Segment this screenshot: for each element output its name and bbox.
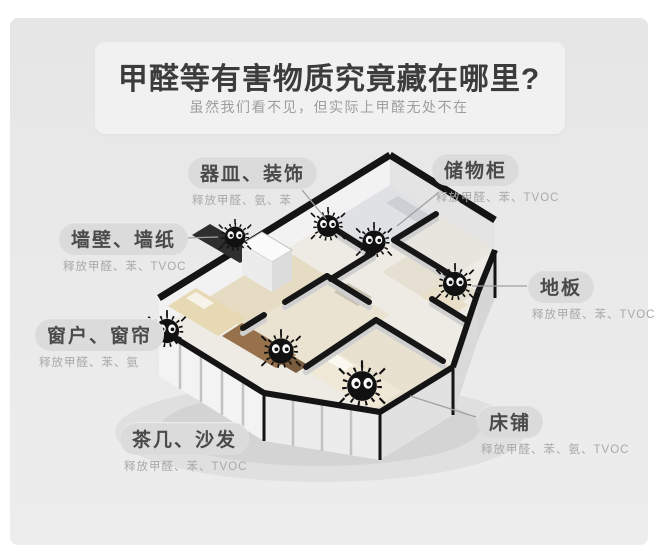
callout-bed: 床铺 释放甲醛、苯、氨、TVOC: [477, 405, 629, 457]
callout-vessels-pill: 器皿、装饰: [188, 156, 317, 189]
callout-cabinet-sub: 释放甲醛、苯、TVOC: [436, 189, 559, 205]
callout-floor-pill: 地板: [528, 270, 594, 303]
callout-bed-sub: 释放甲醛、苯、氨、TVOC: [481, 441, 629, 457]
callout-vessels-sub: 释放甲醛、氨、苯: [192, 192, 317, 208]
callout-sofa: 茶几、沙发 释放甲醛、苯、TVOC: [120, 422, 249, 474]
callout-wall-sub: 释放甲醛、苯、TVOC: [63, 258, 188, 274]
callout-cabinet: 储物柜 释放甲醛、苯、TVOC: [432, 153, 559, 205]
callout-window-pill: 窗户、窗帘: [35, 318, 164, 351]
callout-floor: 地板 释放甲醛、苯、TVOC: [528, 270, 655, 322]
callout-vessels: 器皿、装饰 释放甲醛、氨、苯: [188, 156, 317, 208]
callout-bed-pill: 床铺: [477, 405, 543, 438]
callout-wall-pill: 墙壁、墙纸: [59, 222, 188, 255]
infographic-stage: 甲醛等有害物质究竟藏在哪里? 虽然我们看不见，但实际上甲醛无处不在: [0, 0, 658, 556]
callout-cabinet-pill: 储物柜: [432, 153, 519, 186]
callout-window: 窗户、窗帘 释放甲醛、苯、氨: [35, 318, 164, 370]
callout-wall: 墙壁、墙纸 释放甲醛、苯、TVOC: [59, 222, 188, 274]
callout-sofa-sub: 释放甲醛、苯、TVOC: [124, 458, 249, 474]
callout-window-sub: 释放甲醛、苯、氨: [39, 354, 164, 370]
callout-sofa-pill: 茶几、沙发: [120, 422, 249, 455]
callout-floor-sub: 释放甲醛、苯、TVOC: [532, 306, 655, 322]
